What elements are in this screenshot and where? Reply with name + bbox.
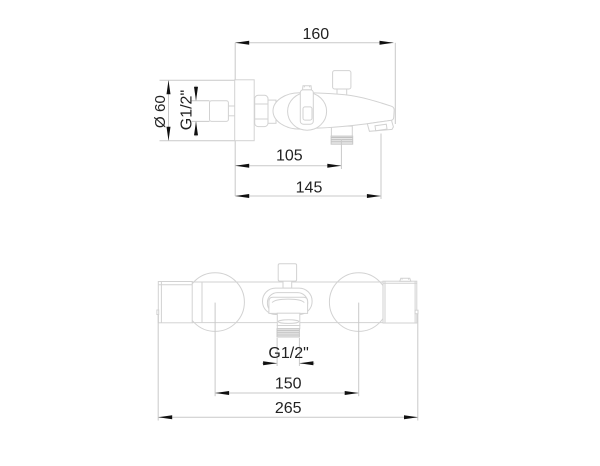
svg-text:150: 150 bbox=[275, 375, 302, 392]
svg-text:265: 265 bbox=[275, 400, 302, 417]
svg-text:105: 105 bbox=[276, 147, 303, 164]
svg-text:G1/2": G1/2" bbox=[178, 90, 195, 130]
svg-text:G1/2": G1/2" bbox=[268, 345, 308, 362]
svg-text:Ø 60: Ø 60 bbox=[152, 95, 169, 128]
svg-text:160: 160 bbox=[302, 26, 329, 43]
svg-text:145: 145 bbox=[296, 179, 323, 196]
